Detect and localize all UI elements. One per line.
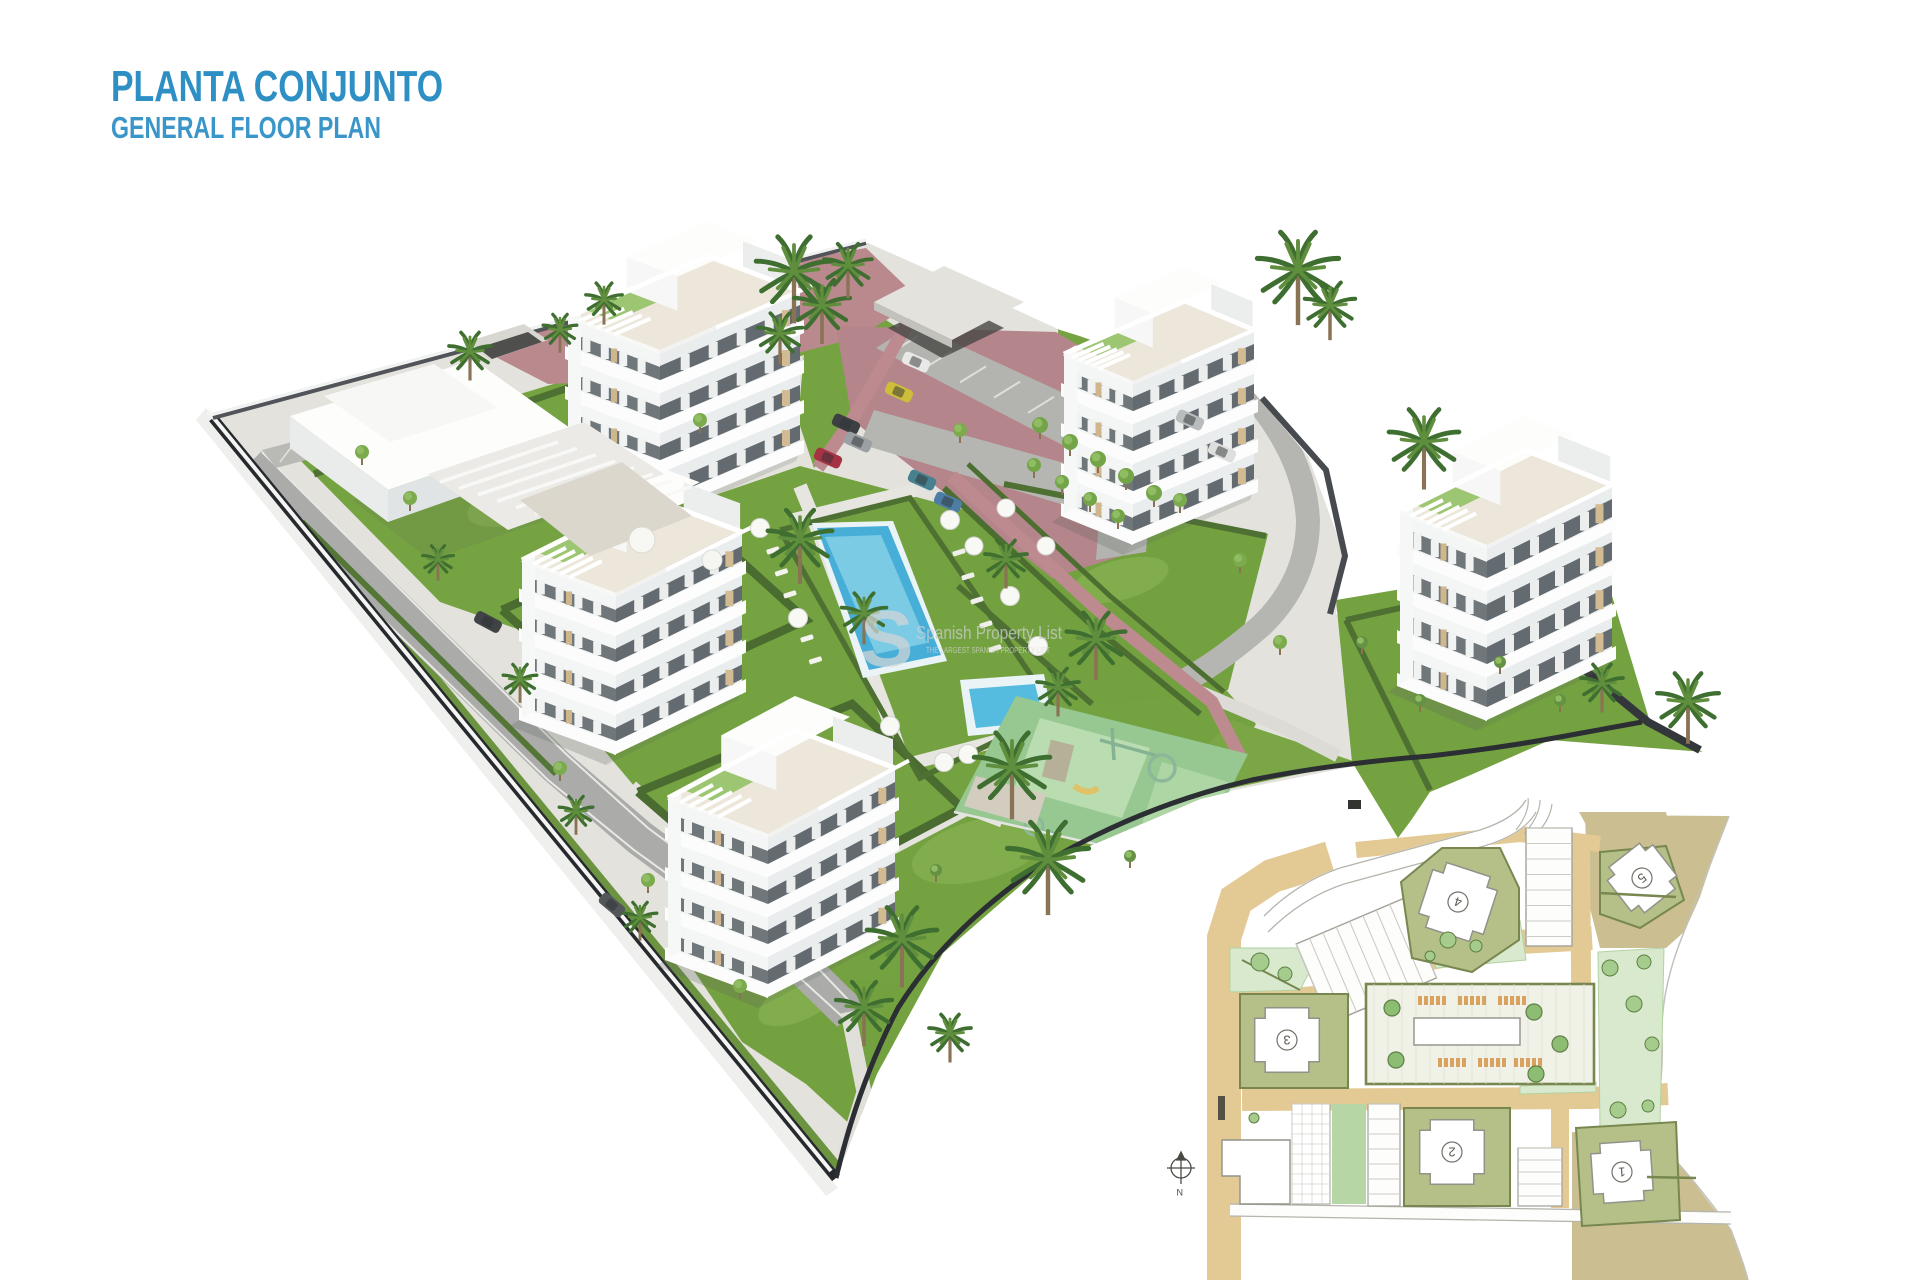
svg-text:3: 3 (1283, 1033, 1290, 1048)
svg-text:2: 2 (1448, 1145, 1455, 1160)
svg-text:PLANTA CONJUNTO: PLANTA CONJUNTO (111, 62, 443, 111)
svg-text:S: S (860, 594, 913, 683)
svg-text:THE LARGEST SPANISH PROPERTY L: THE LARGEST SPANISH PROPERTY LIST (926, 646, 1050, 655)
svg-text:1: 1 (1618, 1164, 1626, 1179)
svg-text:N: N (1177, 1187, 1184, 1197)
svg-text:GENERAL FLOOR PLAN: GENERAL FLOOR PLAN (111, 110, 381, 145)
svg-text:Spanish Property List: Spanish Property List (916, 623, 1062, 643)
